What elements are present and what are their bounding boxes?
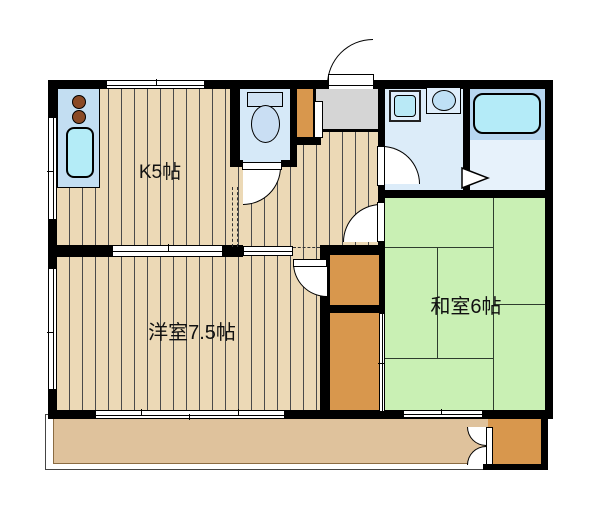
divider-opening (243, 246, 293, 256)
tatami-door-leaf (377, 202, 385, 242)
washroom-door-leaf (377, 146, 385, 186)
west-room-balcony-window (95, 410, 285, 419)
stove-burner-icon (72, 110, 86, 124)
kitchen-label: K5帖 (120, 160, 200, 185)
tatami-line (385, 358, 493, 359)
window-tick (238, 409, 239, 415)
left-window-lower (48, 268, 57, 390)
window-tick (378, 363, 384, 364)
window-tick (189, 414, 190, 420)
opening-dashed-line-horizontal (293, 247, 320, 250)
stove-burner-icon (72, 95, 86, 109)
genkan-entry (316, 88, 378, 131)
closet-upper (330, 255, 379, 305)
bathroom-folding-door (461, 167, 490, 189)
kitchen-west-sliding-door (112, 245, 223, 257)
vanity-sink (432, 90, 456, 111)
western-room-label: 洋室7.5帖 (132, 321, 252, 346)
window-tick (141, 409, 142, 415)
wetroom-wall-bottom (378, 190, 553, 198)
window-tick (47, 171, 53, 172)
storage-wall-right (541, 412, 548, 470)
window-tick (168, 244, 169, 251)
opening-dashed-line-vertical (232, 187, 238, 247)
closet-lower (330, 313, 379, 412)
storage-wall-bottom (483, 464, 548, 470)
bathtub (473, 93, 541, 134)
window-tick (47, 332, 53, 333)
storage-door-leaf (486, 427, 493, 465)
window-tick (441, 409, 442, 415)
toilet-wall-left (230, 83, 240, 167)
toilet-wall-right (290, 83, 297, 167)
balcony-storage (488, 419, 542, 464)
tatami-line (385, 247, 493, 248)
left-window-upper (48, 117, 57, 220)
west-room-door-leaf (293, 259, 327, 267)
tatami-balcony-window (403, 410, 483, 418)
toilet-bowl (251, 105, 280, 143)
shoe-cabinet-wall (295, 137, 321, 145)
kitchen-window (106, 80, 205, 89)
closet-wall-top (330, 245, 385, 255)
toilet-door-leaf (242, 162, 282, 170)
shoe-cabinet (295, 88, 313, 137)
closet-fusuma (379, 313, 385, 412)
genkan-edge (316, 129, 378, 132)
washroom-wall-left-upper (378, 88, 385, 147)
closet-upper-right-wall (379, 255, 385, 305)
closet-wall-mid (330, 305, 385, 313)
wall-right (545, 80, 553, 412)
tatami-wall-left-b (378, 241, 385, 255)
kitchen-west-wall (57, 245, 112, 257)
toilet-wall-bottom-r (281, 160, 297, 167)
entrance-door-leaf (328, 74, 374, 86)
kitchen-sink (66, 127, 94, 178)
floor-plan: K5帖 洋室7.5帖 和室6帖 (0, 0, 600, 513)
genkan-step (314, 101, 323, 138)
japanese-room-label: 和室6帖 (411, 295, 521, 320)
window-tick (156, 79, 157, 85)
washing-machine (394, 95, 416, 117)
